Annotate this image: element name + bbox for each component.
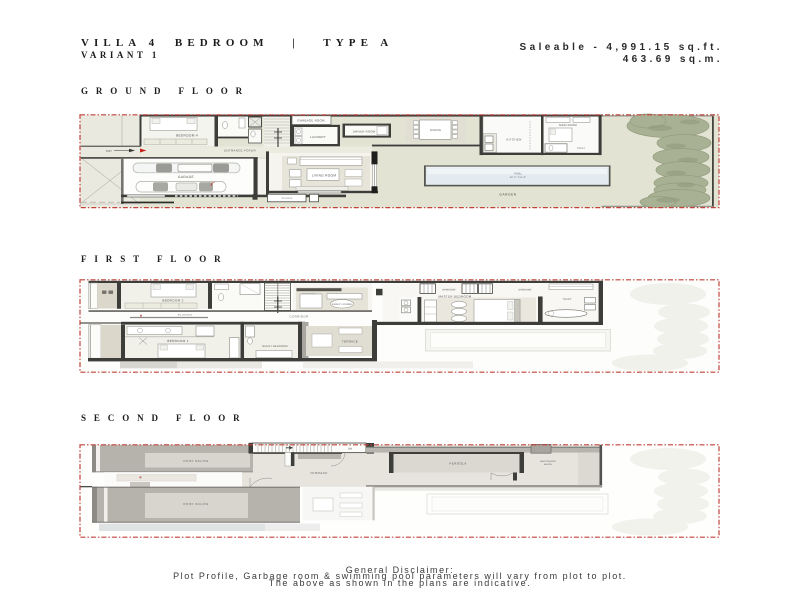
svg-text:MAID ROOM: MAID ROOM (559, 124, 577, 127)
svg-text:STORAGE: STORAGE (282, 197, 293, 200)
svg-text:BAR COUNTER: BAR COUNTER (540, 460, 556, 463)
svg-text:WARDROBE: WARDROBE (518, 289, 532, 292)
svg-text:LIVING ROOM: LIVING ROOM (312, 173, 337, 177)
svg-text:CORRIDOR: CORRIDOR (290, 315, 309, 319)
svg-text:TERRACE: TERRACE (310, 471, 328, 475)
svg-text:ROOF BELOW: ROOF BELOW (183, 459, 208, 463)
svg-text:KITCHEN: KITCHEN (506, 137, 521, 141)
svg-text:BEDROOM 1: BEDROOM 1 (167, 339, 188, 343)
svg-text:GARDEN: GARDEN (499, 192, 516, 196)
svg-text:TOILET: TOILET (563, 298, 572, 301)
svg-text:BEDROOM 2: BEDROOM 2 (162, 299, 183, 303)
svg-text:BALUSTRADE: BALUSTRADE (178, 314, 193, 317)
svg-text:FAMILY LOUNGE: FAMILY LOUNGE (332, 303, 353, 306)
svg-text:GUEST BEDROOM: GUEST BEDROOM (262, 345, 288, 348)
svg-text:DN: DN (348, 448, 352, 451)
svg-text:DRIVER ROOM: DRIVER ROOM (353, 129, 376, 133)
svg-text:ENT: ENT (106, 149, 112, 153)
svg-text:GARBAGE ROOM: GARBAGE ROOM (297, 118, 325, 122)
svg-text:TERRACE: TERRACE (342, 340, 358, 344)
svg-text:TOILET: TOILET (577, 147, 586, 150)
svg-text:PERGOLA: PERGOLA (449, 461, 466, 465)
svg-text:40'-0" X 8'-0": 40'-0" X 8'-0" (510, 176, 527, 179)
svg-text:GARAGE: GARAGE (178, 175, 194, 179)
svg-text:POOL: POOL (514, 172, 523, 175)
svg-text:LAUNDRY: LAUNDRY (310, 135, 326, 139)
svg-text:MASTER BEDROOM: MASTER BEDROOM (438, 295, 471, 299)
svg-text:ENTRANCE FOYER: ENTRANCE FOYER (224, 148, 256, 152)
svg-text:DINING: DINING (430, 128, 441, 132)
svg-text:ROOF BELOW: ROOF BELOW (183, 502, 208, 506)
svg-text:WARDROBE: WARDROBE (442, 289, 456, 292)
svg-text:BEDROOM 4: BEDROOM 4 (176, 134, 198, 138)
svg-text:BELOW: BELOW (544, 463, 552, 466)
